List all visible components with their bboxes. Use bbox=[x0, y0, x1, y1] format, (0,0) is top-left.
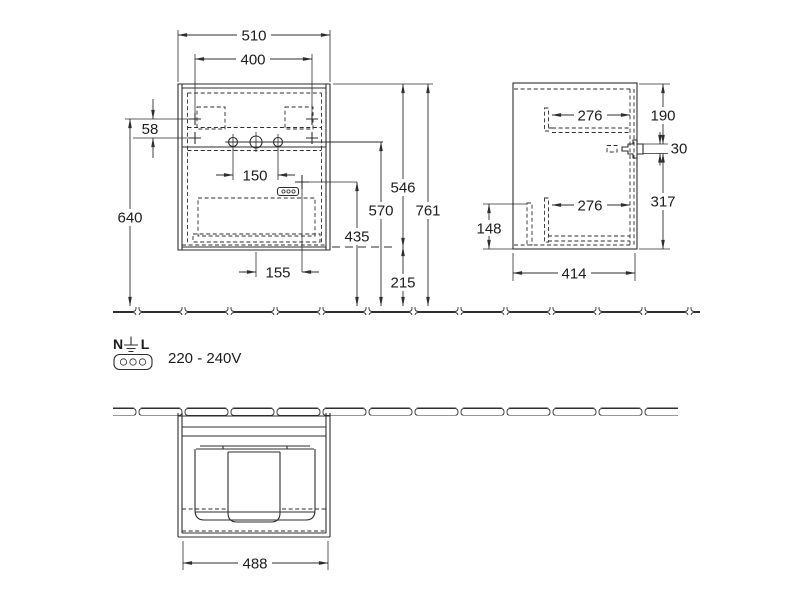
dim-label-570: 570 bbox=[368, 203, 393, 220]
dim-label-546: 546 bbox=[390, 180, 415, 197]
dim-label-215: 215 bbox=[390, 275, 415, 292]
dim-label-190: 190 bbox=[650, 108, 675, 125]
terminal-n-label: N bbox=[113, 336, 123, 352]
dim-label-155: 155 bbox=[265, 265, 290, 282]
dim-label-400: 400 bbox=[240, 52, 265, 69]
dim-label-488: 488 bbox=[242, 556, 267, 573]
dim-label-276-bottom: 276 bbox=[577, 198, 602, 215]
vanity-dimension-drawing: 510 400 58 640 150 155 435 570 bbox=[0, 0, 800, 600]
floor-tile-line bbox=[113, 307, 700, 315]
technical-drawing-page: 510 400 58 640 150 155 435 570 bbox=[0, 0, 800, 600]
dim-label-58: 58 bbox=[142, 121, 159, 138]
terminal-l-label: L bbox=[141, 336, 150, 352]
dim-label-640: 640 bbox=[117, 210, 142, 227]
wall-tile-line bbox=[113, 408, 678, 416]
background bbox=[0, 0, 800, 600]
voltage-label: 220 - 240V bbox=[168, 350, 241, 367]
dim-label-276-top: 276 bbox=[577, 108, 602, 125]
dim-label-317: 317 bbox=[650, 194, 675, 211]
dim-label-30: 30 bbox=[671, 141, 688, 158]
dim-label-435: 435 bbox=[344, 229, 369, 246]
dim-label-510: 510 bbox=[241, 28, 266, 45]
dim-label-414: 414 bbox=[561, 266, 586, 283]
dim-label-761: 761 bbox=[415, 203, 440, 220]
dim-label-150: 150 bbox=[242, 168, 267, 185]
dim-label-148: 148 bbox=[476, 221, 501, 238]
